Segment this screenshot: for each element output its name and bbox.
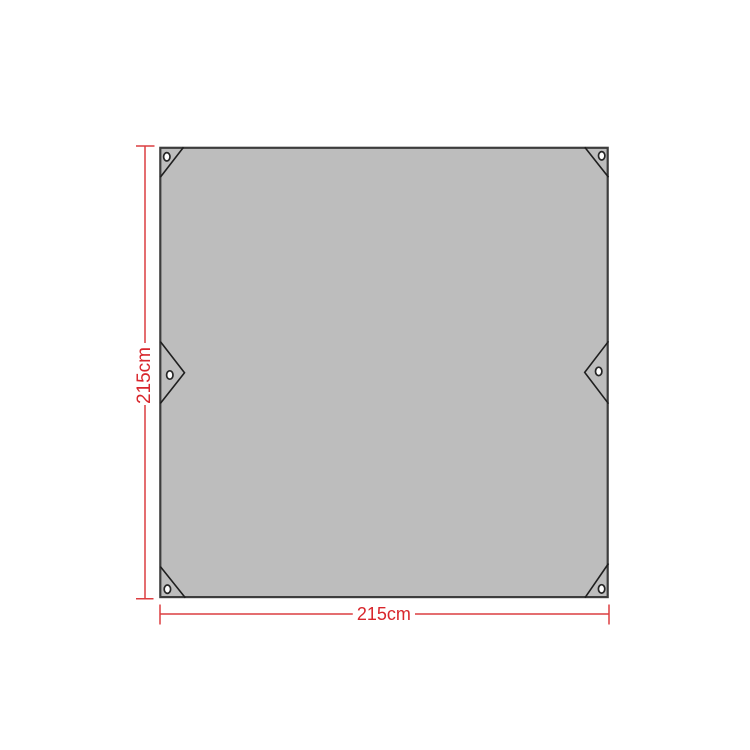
svg-text:215cm: 215cm: [134, 347, 155, 404]
svg-text:215cm: 215cm: [357, 604, 411, 624]
